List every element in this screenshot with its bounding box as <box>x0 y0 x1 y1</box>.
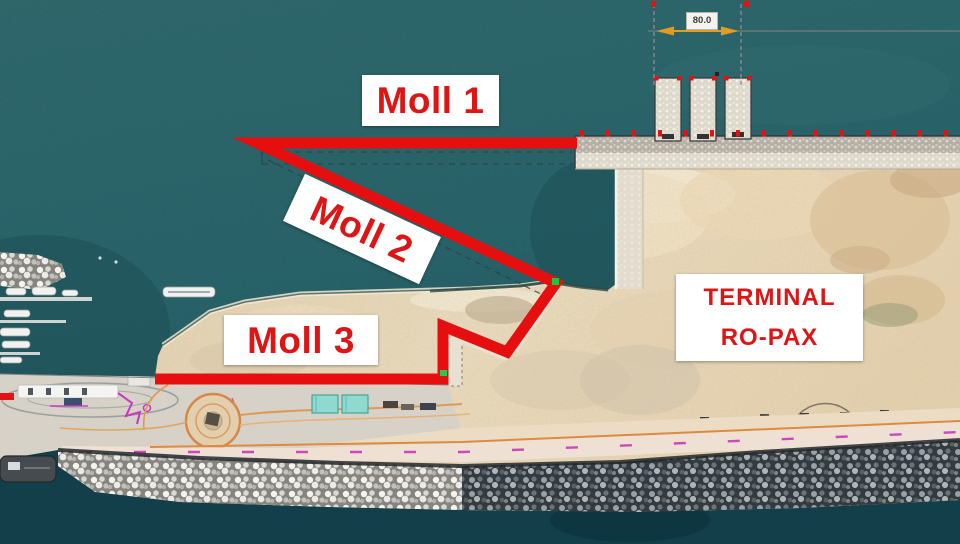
label-dimension-value: 80.0 <box>686 12 718 30</box>
truck-3 <box>420 403 436 410</box>
survey-point-green-1 <box>552 278 559 285</box>
label-moll-1-text: Moll 1 <box>377 82 485 119</box>
label-moll-1: Moll 1 <box>362 75 499 126</box>
parked-trailer <box>64 398 82 406</box>
quay-strip <box>575 136 960 169</box>
truck-1 <box>383 401 398 408</box>
causeway-strip <box>616 167 643 289</box>
moored-vessel <box>0 456 56 482</box>
label-moll-3: Moll 3 <box>224 315 378 365</box>
label-terminal-line1: TERMINAL <box>704 286 836 310</box>
label-terminal-ro-pax: TERMINAL RO-PAX <box>676 274 863 361</box>
port-aerial-map: Moll 1 Moll 2 Moll 3 TERMINAL RO-PAX 80.… <box>0 0 960 544</box>
quay-bollard-ticks <box>580 130 948 137</box>
pier-3 <box>725 78 751 139</box>
label-terminal-line2: RO-PAX <box>721 326 819 350</box>
red-line-fragment-left-edge <box>0 393 14 400</box>
label-moll-3-text: Moll 3 <box>247 322 355 359</box>
roundabout <box>186 394 240 448</box>
survey-point-green-2 <box>440 370 447 376</box>
truck-2 <box>401 404 414 410</box>
dimension-value-text: 80.0 <box>693 16 712 26</box>
